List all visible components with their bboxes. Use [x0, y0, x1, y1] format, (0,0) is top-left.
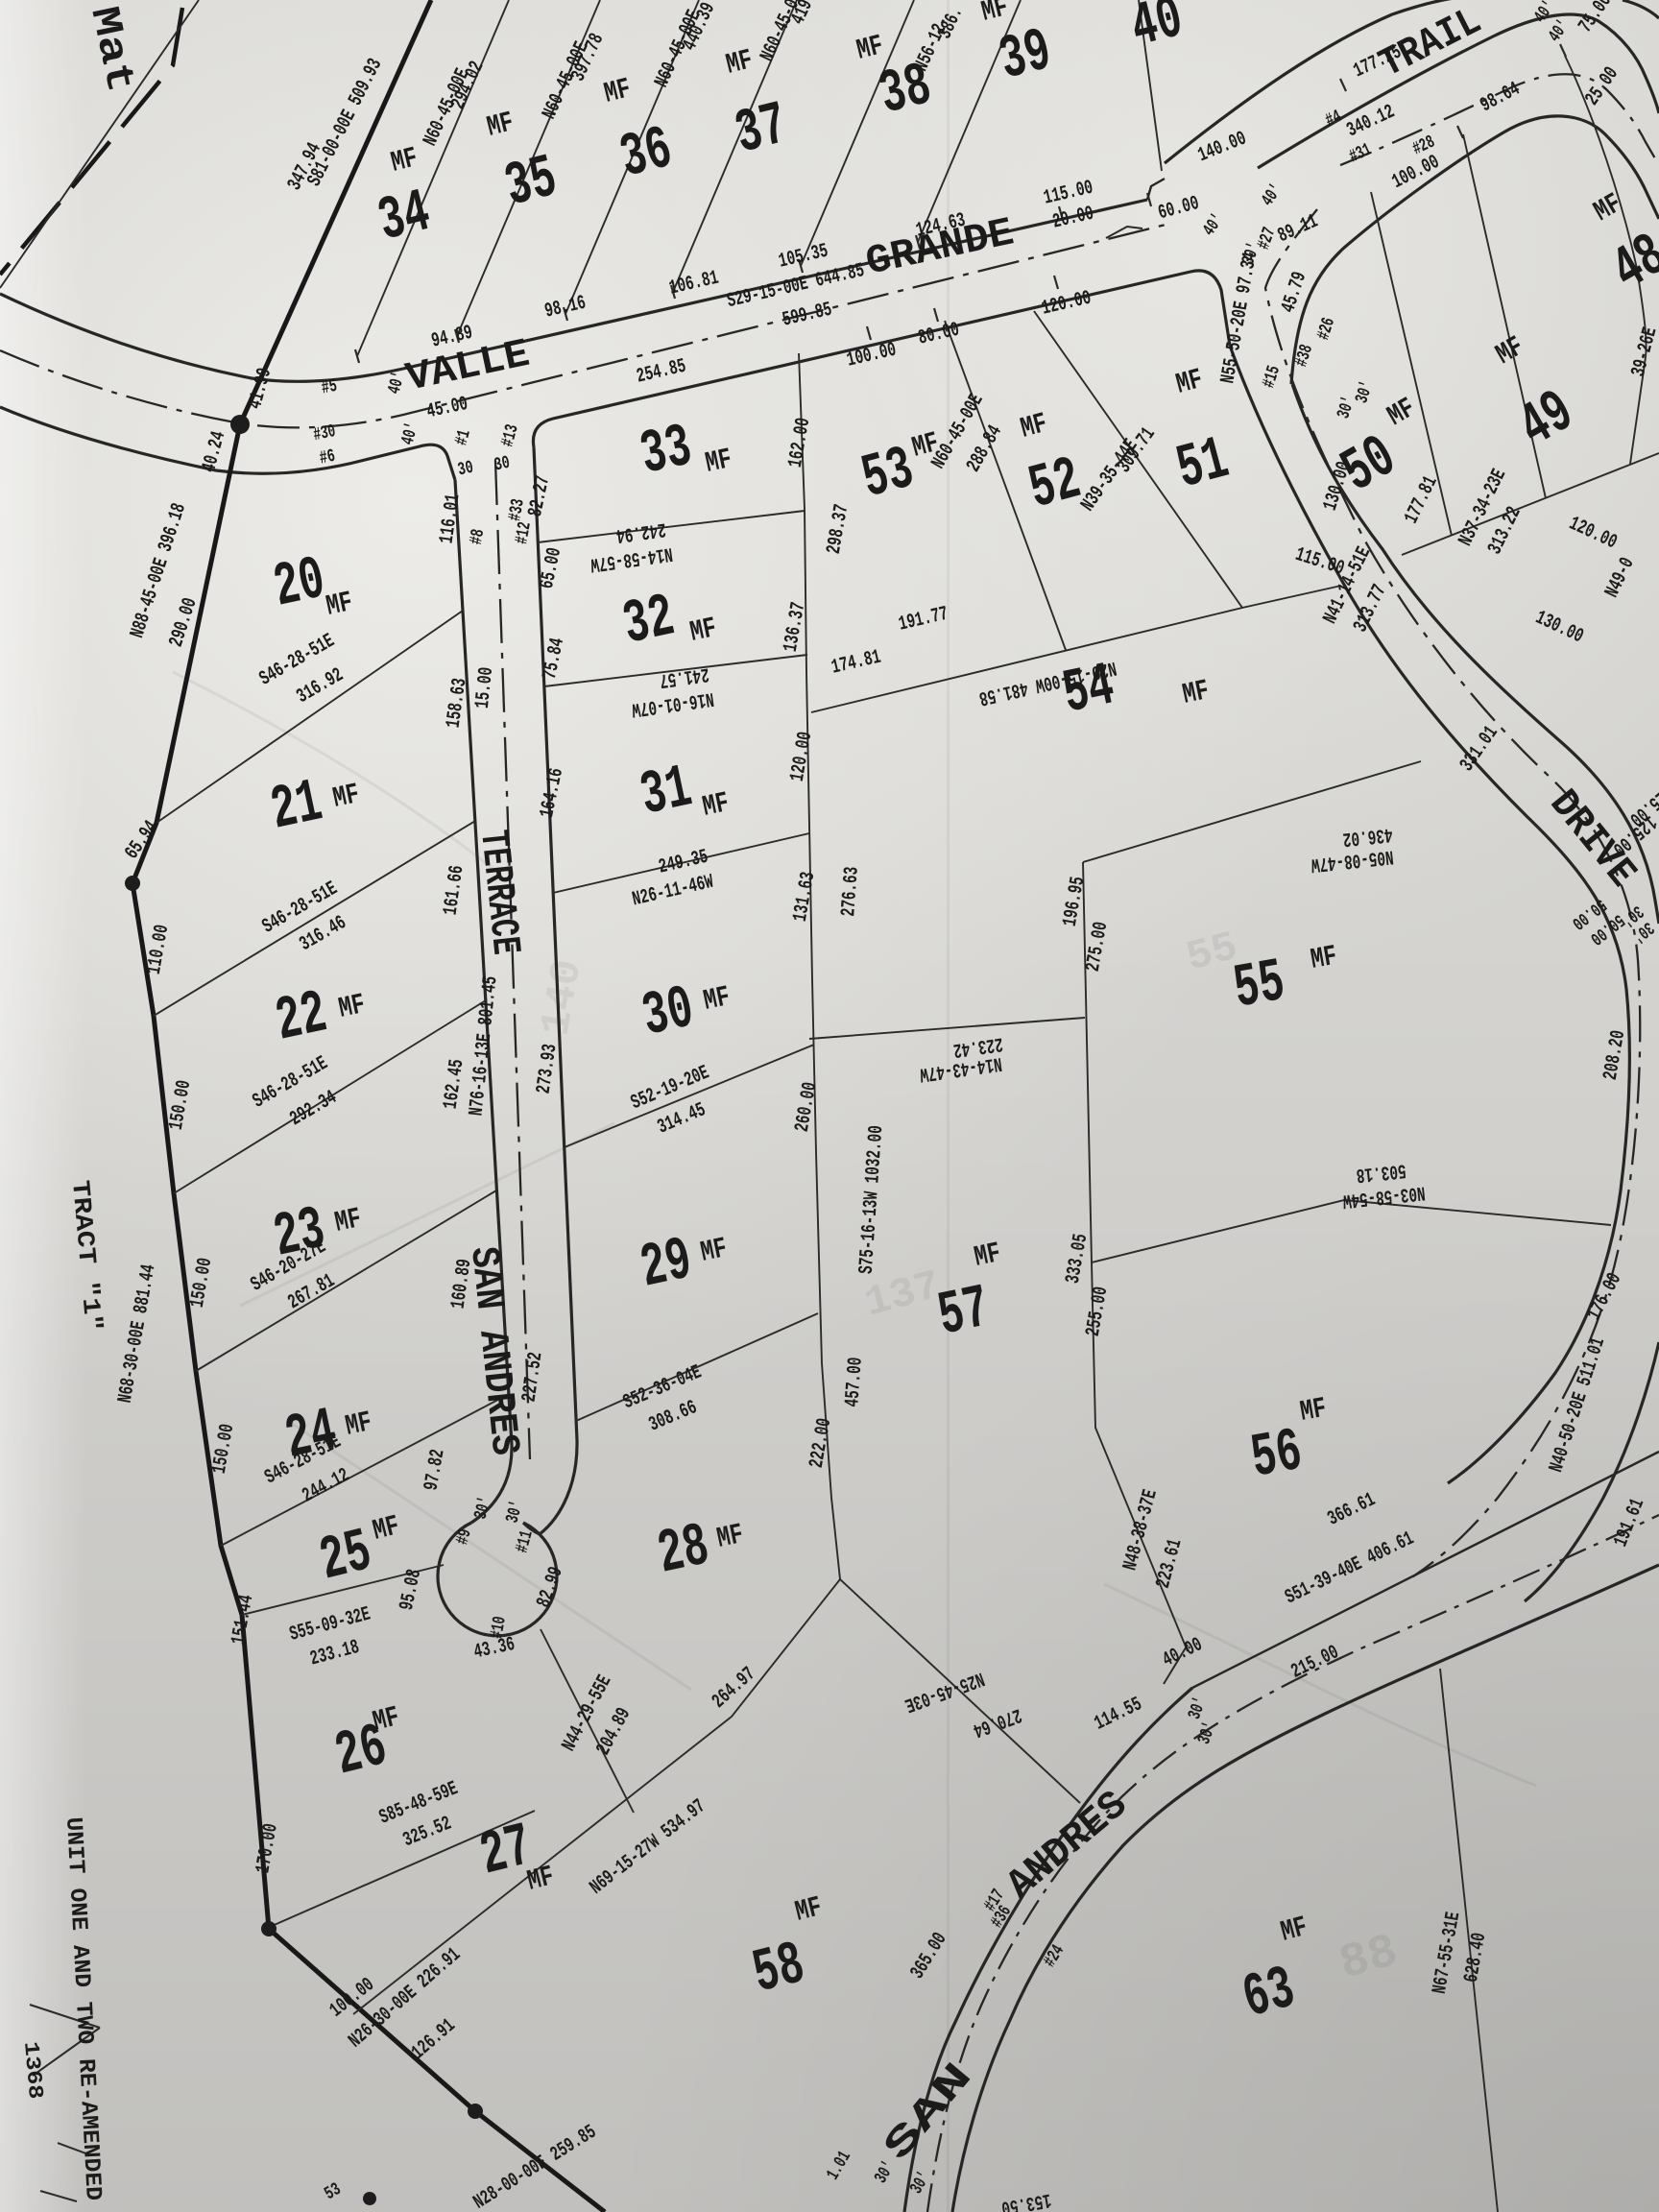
- svg-text:15.00: 15.00: [472, 666, 498, 709]
- svg-text:457.00: 457.00: [842, 1357, 868, 1407]
- svg-text:#12: #12: [511, 520, 536, 545]
- svg-text:276.63: 276.63: [838, 866, 864, 917]
- svg-text:1368: 1368: [18, 2040, 47, 2100]
- svg-text:#30: #30: [311, 421, 337, 445]
- svg-text:#10: #10: [486, 1615, 511, 1640]
